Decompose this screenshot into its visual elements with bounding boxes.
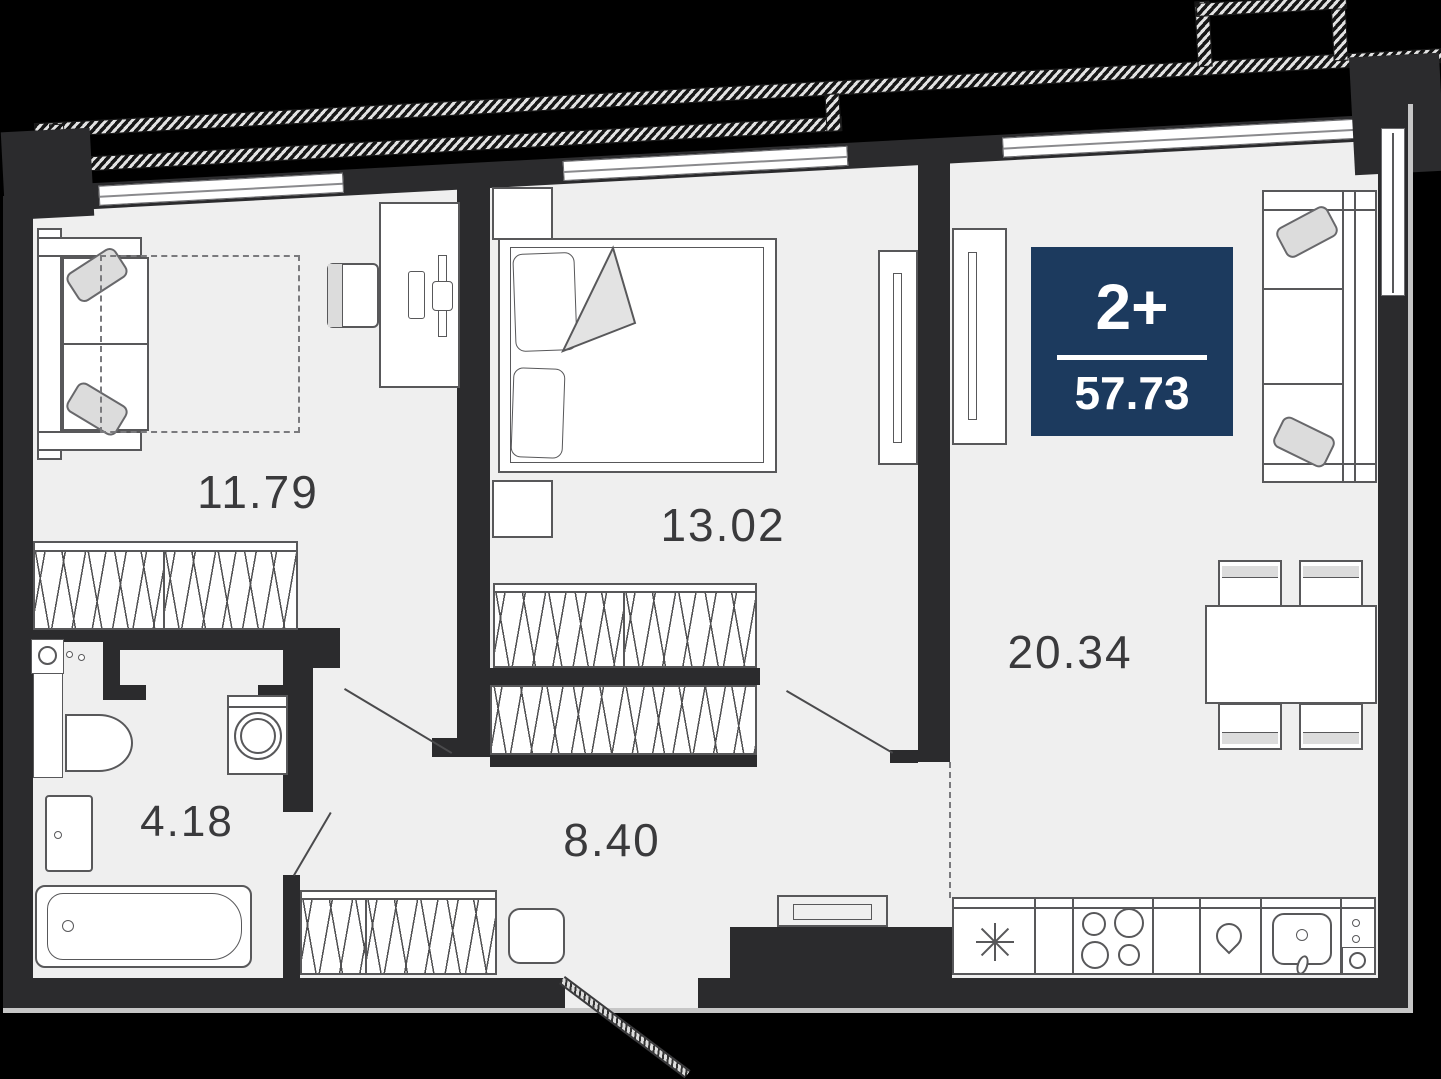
bedroom-area-label: 13.02 [660, 498, 785, 552]
sofa-living-seam2 [1262, 383, 1344, 385]
apartment-badge: 2+ 57.73 [1031, 247, 1233, 436]
wall-bottom-left [3, 978, 565, 1008]
wall-bottom-right [698, 978, 1408, 1008]
washing-machine-drum-inner [240, 718, 276, 754]
sofa-living-back-line2 [1354, 192, 1356, 481]
pouf [508, 908, 565, 964]
stove-burner-icon [1082, 912, 1106, 936]
wall-shadow-bottom [3, 1008, 1413, 1013]
dining-chair-bottom-left [1218, 703, 1282, 750]
nightstand-top [492, 187, 553, 240]
wall-left [3, 196, 33, 1008]
corner-knob-2 [1352, 935, 1360, 943]
nightstand-bottom [492, 480, 553, 538]
bed-blanket-fold [553, 240, 645, 356]
stove-burner-icon [1118, 944, 1140, 966]
wall-bedroom-living-foot [890, 750, 918, 763]
wall-bedroom-south [490, 668, 760, 685]
dining-chair-top-right [1299, 560, 1363, 607]
bathroom-cabinet [45, 795, 93, 872]
floorplan-page: { "plan": { "badge": { "rooms_label": "2… [0, 0, 1441, 1079]
chair-backrest [1222, 732, 1278, 744]
wall-room1-south [33, 628, 340, 642]
desk-chair-backrest [328, 264, 343, 327]
counter-divider [1260, 899, 1262, 973]
stove-burner-icon [1081, 941, 1109, 969]
balcony-loop-top [1197, 0, 1346, 16]
stove-burner-icon [1114, 908, 1144, 938]
duct-stub-left [120, 685, 146, 700]
wall-room1-bedroom [457, 185, 490, 757]
wall-bathroom-right-lower [283, 875, 300, 978]
wardrobe-room1-right [163, 550, 298, 630]
bath-sink-bowl [38, 646, 57, 665]
sofa-living-back-line1 [1342, 192, 1344, 481]
wardrobe-bedroom-door [893, 273, 902, 443]
wall-shadow-right [1408, 104, 1413, 1010]
wardrobe-bedroom-left [493, 591, 625, 668]
corner-unit-burner [1349, 952, 1366, 969]
desk-keyboard [408, 271, 425, 319]
wall-hall-wardrobe-edge [490, 755, 757, 767]
dining-table [1205, 605, 1377, 704]
bathtub-inner [47, 893, 242, 960]
badge-rooms-label: 2+ [1031, 275, 1233, 339]
wall-vestibule [730, 927, 952, 982]
counter-divider [1034, 899, 1036, 973]
hallway-area-label: 8.40 [563, 813, 661, 867]
wardrobe-living-door [968, 252, 977, 420]
balcony-loop-right [1331, 0, 1347, 60]
bathtub-drain [62, 920, 74, 932]
wardrobe-living-sliding [952, 228, 1007, 445]
placement-zone-dashed [100, 255, 300, 433]
water-drop-icon [1211, 918, 1248, 955]
doormat-inner [793, 904, 872, 920]
sofa-room1-arm-bottom [37, 431, 142, 451]
wardrobe-hall-left [300, 898, 367, 975]
room1-area-label: 11.79 [197, 465, 319, 519]
zone-line-kitchen [949, 762, 951, 898]
counter-divider [1199, 899, 1201, 973]
bed-pillow-bottom [510, 367, 565, 459]
kitchen-sink-drain [1296, 929, 1308, 941]
counter-divider [1072, 899, 1074, 973]
sofa-room1-back [37, 228, 62, 460]
desk-monitor-stand [432, 281, 453, 311]
wardrobe-hall-north [490, 685, 757, 755]
corner-knob-1 [1352, 919, 1360, 927]
sink-knob-1 [66, 651, 73, 658]
bathroom-cabinet-knob [54, 831, 62, 839]
sofa-living-seam1 [1262, 288, 1344, 290]
bathroom-area-label: 4.18 [140, 797, 234, 847]
washing-machine-panel [229, 706, 286, 708]
wall-bedroom-living [918, 150, 950, 762]
corner-unit [1342, 947, 1376, 975]
badge-divider [1057, 355, 1207, 360]
toilet [65, 714, 133, 772]
dining-chair-bottom-right [1299, 703, 1363, 750]
counter-divider [1152, 899, 1154, 973]
kitchen-counter [952, 897, 1376, 975]
counter-edge-line [954, 907, 1374, 909]
wardrobe-room1-left [33, 550, 165, 630]
wardrobe-bedroom-right [623, 591, 757, 668]
railing-end-right [825, 94, 840, 131]
living-area-label: 20.34 [1007, 625, 1132, 679]
sofa-room1-arm-top [37, 237, 142, 257]
fridge-snowflake-icon [976, 923, 1014, 961]
dining-chair-top-left [1218, 560, 1282, 607]
badge-area-total: 57.73 [1031, 370, 1233, 416]
sink-knob-2 [78, 654, 85, 661]
wardrobe-hall-right [365, 898, 497, 975]
chair-backrest [1303, 732, 1359, 744]
chair-backrest [1303, 566, 1359, 578]
window-right-wall [1381, 128, 1405, 296]
chair-backrest [1222, 566, 1278, 578]
